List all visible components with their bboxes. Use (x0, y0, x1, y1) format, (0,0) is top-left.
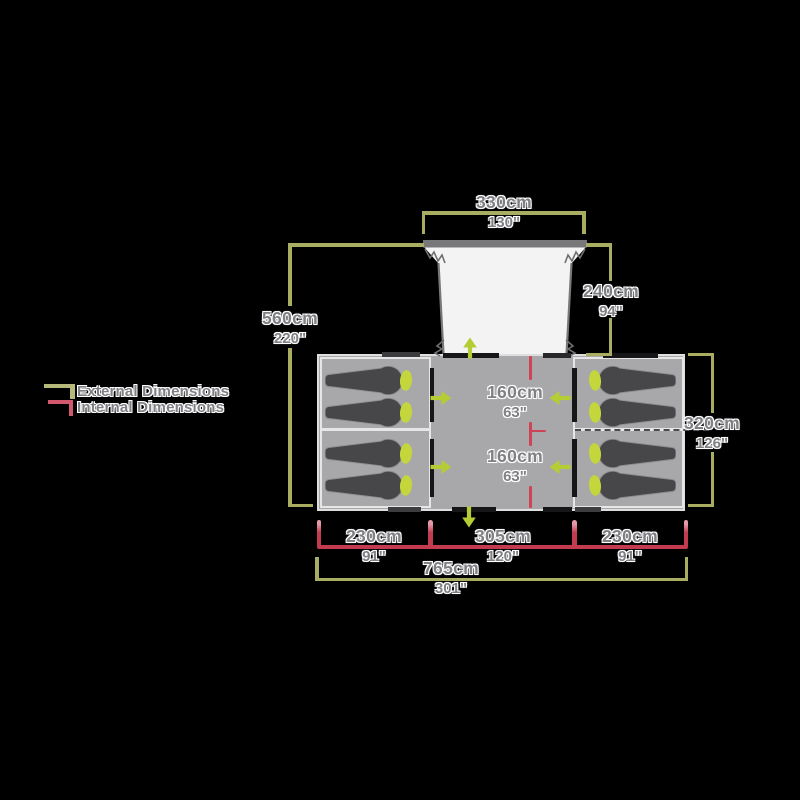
dim-label-total-depth: 560cm 220" (262, 309, 318, 346)
dim-inner-back-inch: 63" (487, 469, 543, 484)
sleeping-bag (325, 366, 422, 395)
door-arrow-right-icon (430, 460, 451, 474)
legend-internal-label: Internal Dimensions (77, 400, 224, 415)
sleeping-bag (579, 439, 676, 468)
dim-line-internal-width-tick (317, 520, 322, 546)
door-arrow-left-icon (549, 460, 570, 474)
dim-line-total-depth (288, 243, 292, 306)
dim-line-porch-depth (586, 353, 612, 357)
dim-pod-left-cm: 230cm (346, 527, 402, 545)
dim-line-body-depth (711, 452, 715, 505)
sleeping-bag-shape (325, 398, 403, 427)
dim-line-internal-width-tick (428, 520, 433, 546)
dim-pod-right-inch: 91" (602, 549, 658, 564)
sleeping-bag (325, 471, 422, 500)
door-opening-bar (388, 507, 421, 512)
pillow-icon (399, 474, 413, 496)
dim-total-depth-inch: 220" (262, 331, 318, 346)
door-arrow-up-icon (463, 338, 477, 359)
dim-body-depth-inch: 126" (684, 436, 740, 451)
dim-line-top-width (582, 211, 586, 234)
dim-pod-right-cm: 230cm (602, 527, 658, 545)
sleeping-bag (325, 439, 422, 468)
legend-external-label: External Dimensions (77, 384, 229, 399)
sleeping-bag-shape (598, 471, 676, 500)
sleeping-bag (325, 398, 422, 427)
pillow-icon (588, 401, 602, 423)
door-opening-bar (543, 507, 572, 512)
door-arrow-right-icon (430, 391, 451, 405)
sleeping-bag-shape (325, 366, 403, 395)
pod-seam-left (321, 428, 429, 432)
dim-total-width-cm: 765cm (423, 559, 479, 577)
dim-top-width-cm: 330cm (476, 193, 532, 211)
legend-external-line-icon (70, 384, 75, 399)
dim-label-inner-front: 160cm 63" (487, 383, 543, 420)
dim-line-body-depth (711, 353, 715, 413)
dim-center-width-cm: 305cm (475, 527, 531, 545)
sleeping-bag-shape (325, 471, 403, 500)
dim-center-width-inch: 120" (475, 549, 531, 564)
dim-inner-front-cm: 160cm (487, 383, 543, 401)
canopy-front-edge (423, 240, 587, 248)
dim-label-pod-right-width: 230cm 91" (602, 527, 658, 564)
door-opening-bar (382, 352, 420, 357)
dim-label-center-width: 305cm 120" (475, 527, 531, 564)
dim-line-total-width (685, 557, 689, 578)
dim-pod-left-inch: 91" (346, 549, 402, 564)
sleeping-bag-shape (598, 366, 676, 395)
sleeping-bag-shape (598, 398, 676, 427)
dim-line-inner-depth (529, 486, 532, 508)
sleeping-bag (579, 471, 676, 500)
dim-line-internal-width-tick (684, 520, 689, 546)
tent-floorplan-diagram: External Dimensions Internal Dimensions … (0, 0, 800, 800)
dim-line-porch-depth (609, 318, 613, 356)
canopy-floor (424, 247, 586, 354)
door-opening-bar (575, 507, 601, 512)
dim-label-inner-back: 160cm 63" (487, 447, 543, 484)
door-opening-bar (543, 353, 571, 358)
dim-label-top-width: 330cm 130" (476, 193, 532, 230)
sleeping-bag (579, 366, 676, 395)
dim-line-total-width (315, 578, 688, 582)
sleeping-bag (579, 398, 676, 427)
pillow-icon (588, 474, 602, 496)
pillow-icon (588, 370, 602, 392)
pillow-icon (399, 443, 413, 465)
dim-label-total-width: 765cm 301" (423, 559, 479, 596)
dim-line-porch-depth (609, 243, 613, 281)
door-arrow-down-icon (462, 506, 476, 527)
dim-line-top-width (422, 211, 426, 234)
dim-line-internal-width-tick (572, 520, 577, 546)
dim-porch-depth-inch: 94" (583, 304, 639, 319)
door-arrow-left-icon (549, 391, 570, 405)
dim-label-porch-depth: 240cm 94" (583, 282, 639, 319)
dim-line-inner-depth-tick (529, 430, 547, 433)
door-opening-bar (572, 439, 577, 497)
dim-porch-depth-cm: 240cm (583, 282, 639, 300)
dim-inner-front-inch: 63" (487, 405, 543, 420)
dim-label-body-depth: 320cm 126" (684, 414, 740, 451)
dim-total-width-inch: 301" (423, 581, 479, 596)
door-opening-bar (572, 368, 577, 422)
pillow-icon (588, 443, 602, 465)
dim-line-inner-depth (529, 422, 532, 447)
legend-external-line-icon (44, 384, 71, 388)
sleeping-bag-shape (598, 439, 676, 468)
dim-line-total-depth (288, 243, 424, 247)
legend-internal-line-icon (69, 400, 74, 416)
dim-body-depth-cm: 320cm (684, 414, 740, 432)
dim-line-total-width (315, 557, 319, 578)
pillow-icon (399, 401, 413, 423)
dim-top-width-inch: 130" (476, 215, 532, 230)
dim-label-pod-left-width: 230cm 91" (346, 527, 402, 564)
dim-line-total-depth (288, 504, 313, 508)
dim-inner-back-cm: 160cm (487, 447, 543, 465)
dim-line-total-depth (288, 348, 292, 504)
porch-canopy (415, 236, 597, 358)
dim-line-body-depth (688, 504, 714, 508)
sleeping-bag-shape (325, 439, 403, 468)
dim-total-depth-cm: 560cm (262, 309, 318, 327)
dim-line-inner-depth (529, 356, 532, 380)
pillow-icon (399, 370, 413, 392)
